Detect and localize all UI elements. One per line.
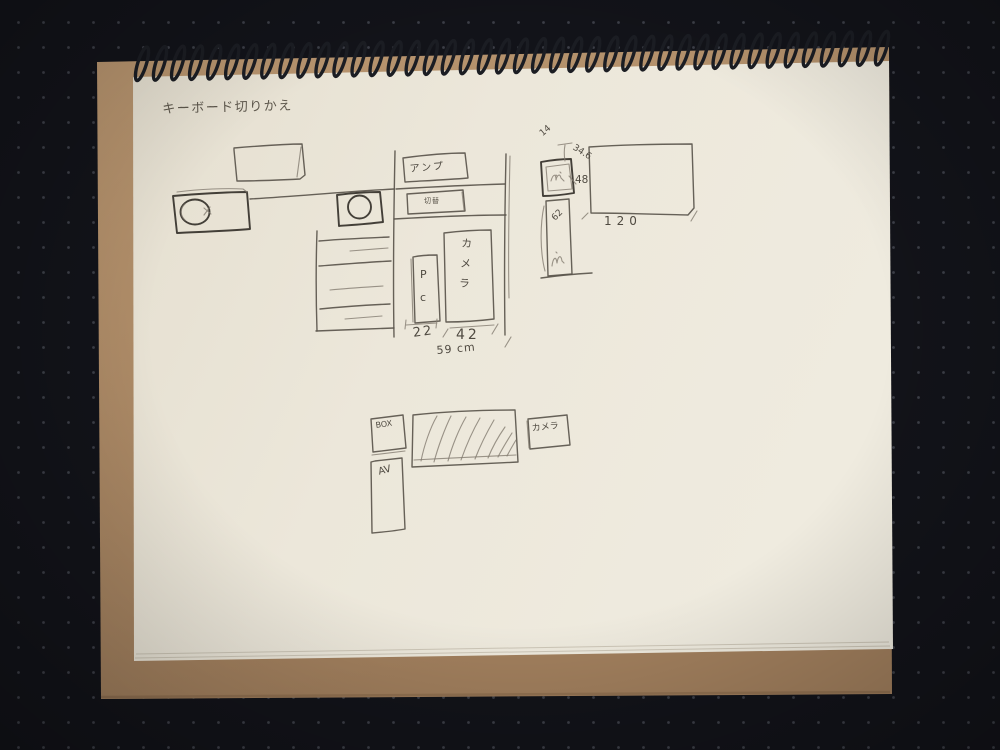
sketch-title: キーボード切りかえ: [162, 95, 293, 117]
photo-of-sketchbook: キーボード切りかえ アンプ 切替 P c カメラ 22 42 59 cm 14 …: [0, 0, 1000, 750]
pc-label: P c: [420, 263, 427, 309]
camera-rack-label: カメラ: [455, 237, 474, 298]
dim-monitor-height: 48: [575, 174, 588, 186]
notebook-paper: [133, 61, 893, 661]
switch-label: 切替: [424, 196, 440, 206]
amp-label: アンプ: [409, 157, 445, 175]
dim-desk-width: 120: [604, 214, 642, 228]
notebook-scene: [0, 0, 1000, 750]
dim-pc-width: 22: [412, 323, 434, 341]
